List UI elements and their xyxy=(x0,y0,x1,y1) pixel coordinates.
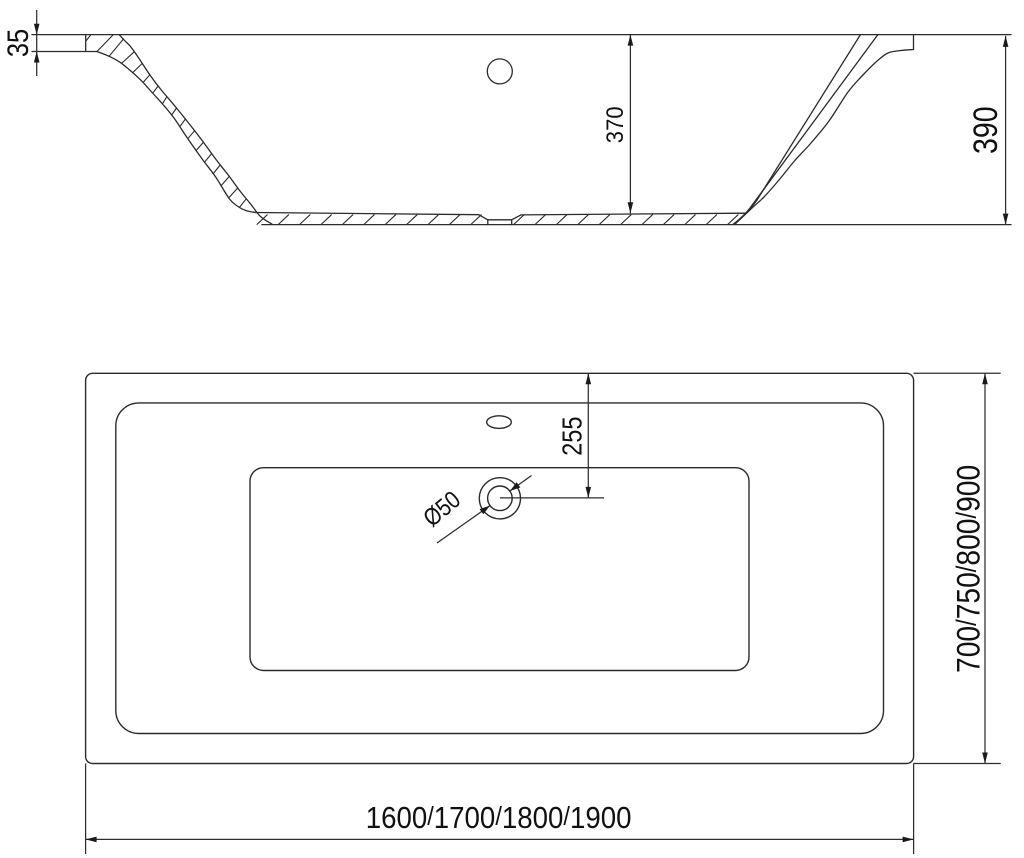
svg-text:390: 390 xyxy=(967,106,1005,154)
svg-text:370: 370 xyxy=(601,106,628,143)
svg-text:255: 255 xyxy=(558,416,588,455)
svg-text:1600/1700/1800/1900: 1600/1700/1800/1900 xyxy=(366,802,632,836)
svg-text:700/750/800/900: 700/750/800/900 xyxy=(951,465,987,673)
svg-text:35: 35 xyxy=(1,29,34,57)
